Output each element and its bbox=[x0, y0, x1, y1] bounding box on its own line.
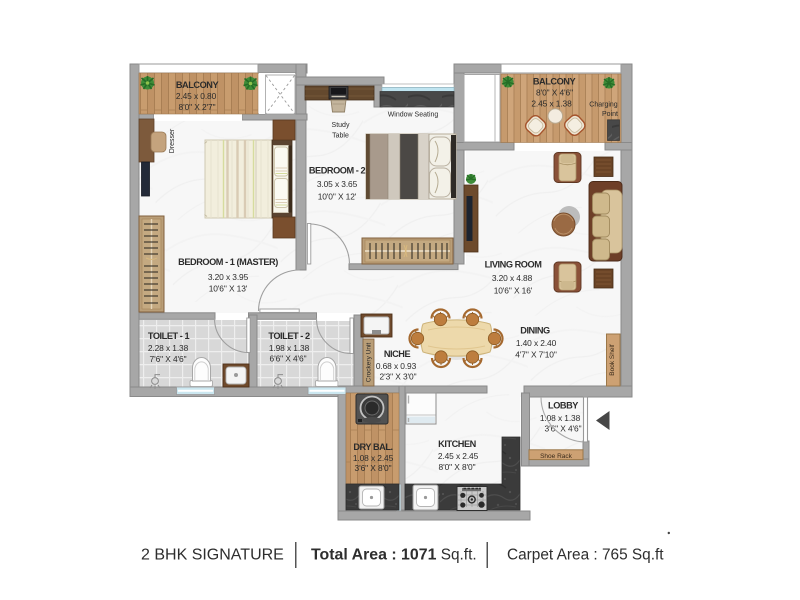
svg-text:8'0" X 2'7": 8'0" X 2'7" bbox=[179, 102, 216, 112]
svg-text:3.05 x 3.65: 3.05 x 3.65 bbox=[317, 179, 358, 189]
svg-text:BEDROOM - 2: BEDROOM - 2 bbox=[309, 166, 366, 176]
svg-text:2.45 x 0.80: 2.45 x 0.80 bbox=[176, 91, 217, 101]
svg-text:8'0" X 8'0": 8'0" X 8'0" bbox=[439, 462, 476, 472]
svg-text:2.28 x 1.38: 2.28 x 1.38 bbox=[148, 343, 189, 353]
svg-text:TOILET - 2: TOILET - 2 bbox=[268, 331, 310, 341]
svg-text:LIVING ROOM: LIVING ROOM bbox=[485, 260, 543, 270]
svg-text:3.20 x 4.88: 3.20 x 4.88 bbox=[492, 273, 533, 283]
svg-text:10'6" X 16': 10'6" X 16' bbox=[494, 286, 533, 296]
svg-text:2.45 x 2.45: 2.45 x 2.45 bbox=[438, 451, 479, 461]
svg-text:Study: Study bbox=[332, 122, 350, 129]
svg-text:2.45 x 1.38: 2.45 x 1.38 bbox=[531, 99, 572, 109]
svg-text:0.68 x 0.93: 0.68 x 0.93 bbox=[376, 361, 417, 371]
svg-text:Window Seating: Window Seating bbox=[388, 112, 439, 119]
svg-text:2'3" X 3'0": 2'3" X 3'0" bbox=[380, 372, 417, 382]
svg-text:4'7" X 7'10": 4'7" X 7'10" bbox=[515, 350, 557, 360]
svg-text:DINING: DINING bbox=[520, 326, 550, 336]
svg-text:Total Area : 1071 Sq.ft.: Total Area : 1071 Sq.ft. bbox=[311, 547, 477, 564]
svg-text:BEDROOM - 1 (MASTER): BEDROOM - 1 (MASTER) bbox=[178, 257, 278, 267]
svg-text:Carpet Area : 765 Sq.ft: Carpet Area : 765 Sq.ft bbox=[507, 547, 664, 564]
svg-text:BALCONY: BALCONY bbox=[176, 80, 219, 90]
svg-text:DRY BAL.: DRY BAL. bbox=[353, 442, 392, 452]
svg-text:TOILET - 1: TOILET - 1 bbox=[148, 331, 190, 341]
svg-text:10'6" X 13': 10'6" X 13' bbox=[209, 284, 248, 294]
svg-text:BALCONY: BALCONY bbox=[533, 77, 576, 87]
svg-text:10'0" X 12': 10'0" X 12' bbox=[318, 192, 357, 202]
svg-text:8'0" X 4'6": 8'0" X 4'6" bbox=[536, 88, 573, 98]
svg-text:3'6" X 8'0": 3'6" X 8'0" bbox=[355, 463, 392, 473]
svg-text:2 BHK SIGNATURE: 2 BHK SIGNATURE bbox=[141, 547, 284, 564]
svg-text:NICHE: NICHE bbox=[384, 349, 411, 359]
svg-text:Dresser: Dresser bbox=[169, 128, 176, 153]
svg-text:KITCHEN: KITCHEN bbox=[438, 439, 476, 449]
svg-text:6'6" X 4'6": 6'6" X 4'6" bbox=[270, 354, 307, 364]
svg-text:3.20 x 3.95: 3.20 x 3.95 bbox=[208, 272, 249, 282]
svg-text:Book Shelf: Book Shelf bbox=[609, 344, 616, 376]
svg-text:1.08 x 2.45: 1.08 x 2.45 bbox=[353, 453, 394, 463]
svg-text:7'6" X 4'6": 7'6" X 4'6" bbox=[150, 354, 187, 364]
svg-text:1.40 x 2.40: 1.40 x 2.40 bbox=[516, 338, 557, 348]
svg-text:Shoe Rack: Shoe Rack bbox=[540, 453, 573, 460]
svg-text:Table: Table bbox=[332, 133, 349, 140]
svg-text:1.98 x 1.38: 1.98 x 1.38 bbox=[269, 343, 310, 353]
svg-text:Crockery Unit: Crockery Unit bbox=[366, 343, 373, 383]
svg-text:Charging: Charging bbox=[589, 102, 618, 109]
svg-text:LOBBY: LOBBY bbox=[548, 401, 578, 411]
svg-text:Point: Point bbox=[602, 111, 618, 118]
